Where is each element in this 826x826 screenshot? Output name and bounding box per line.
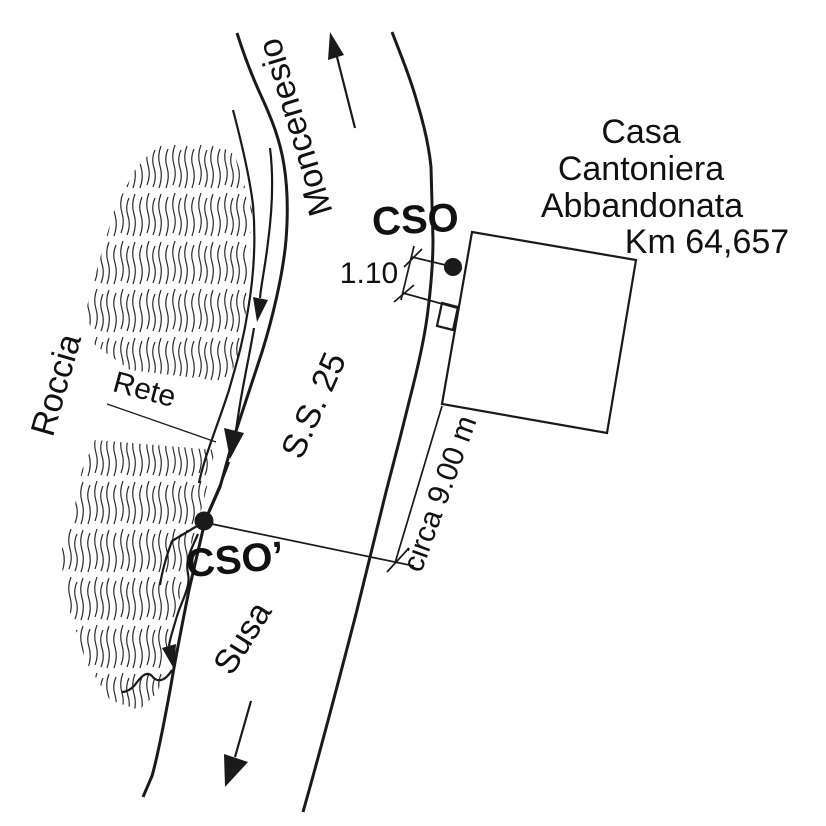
- rock-hatch-upper: [86, 140, 252, 382]
- direction-down-label: Susa: [206, 595, 279, 681]
- station-prime-label: CSO’: [184, 534, 285, 586]
- station-label: CSO: [371, 196, 460, 244]
- cso-point: [444, 258, 462, 276]
- moncenesio-arrow-shaft: [337, 57, 355, 128]
- building-label-line3: Abbandonata: [541, 187, 743, 225]
- moncenesio-arrowhead: [328, 32, 344, 60]
- susa-arrowhead: [224, 754, 248, 787]
- cso-prime-point: [195, 512, 214, 531]
- susa-arrow-shaft: [235, 701, 251, 757]
- dim-110-line: [401, 246, 414, 300]
- figure-canvas: Moncenesio S.S. 25 Susa Roccia Rete CSO …: [0, 0, 826, 826]
- dim-offset-label: 1.10: [340, 257, 398, 290]
- stream-line-1: [260, 148, 272, 298]
- flow-arrowhead-1: [253, 297, 268, 322]
- road-name-label: S.S. 25: [274, 347, 354, 464]
- building-label-line1: Casa: [601, 113, 680, 151]
- direction-up-label: Moncenesio: [251, 34, 341, 220]
- building-label-line2: Cantoniera: [558, 150, 724, 188]
- building-label-line4: Km 64,657: [625, 223, 789, 261]
- dim-span-label: circa 9.00 m: [397, 411, 484, 576]
- rock-label: Roccia: [24, 330, 89, 440]
- site-sketch-svg: Moncenesio S.S. 25 Susa Roccia Rete CSO …: [0, 0, 826, 826]
- building-footprint: [442, 232, 636, 433]
